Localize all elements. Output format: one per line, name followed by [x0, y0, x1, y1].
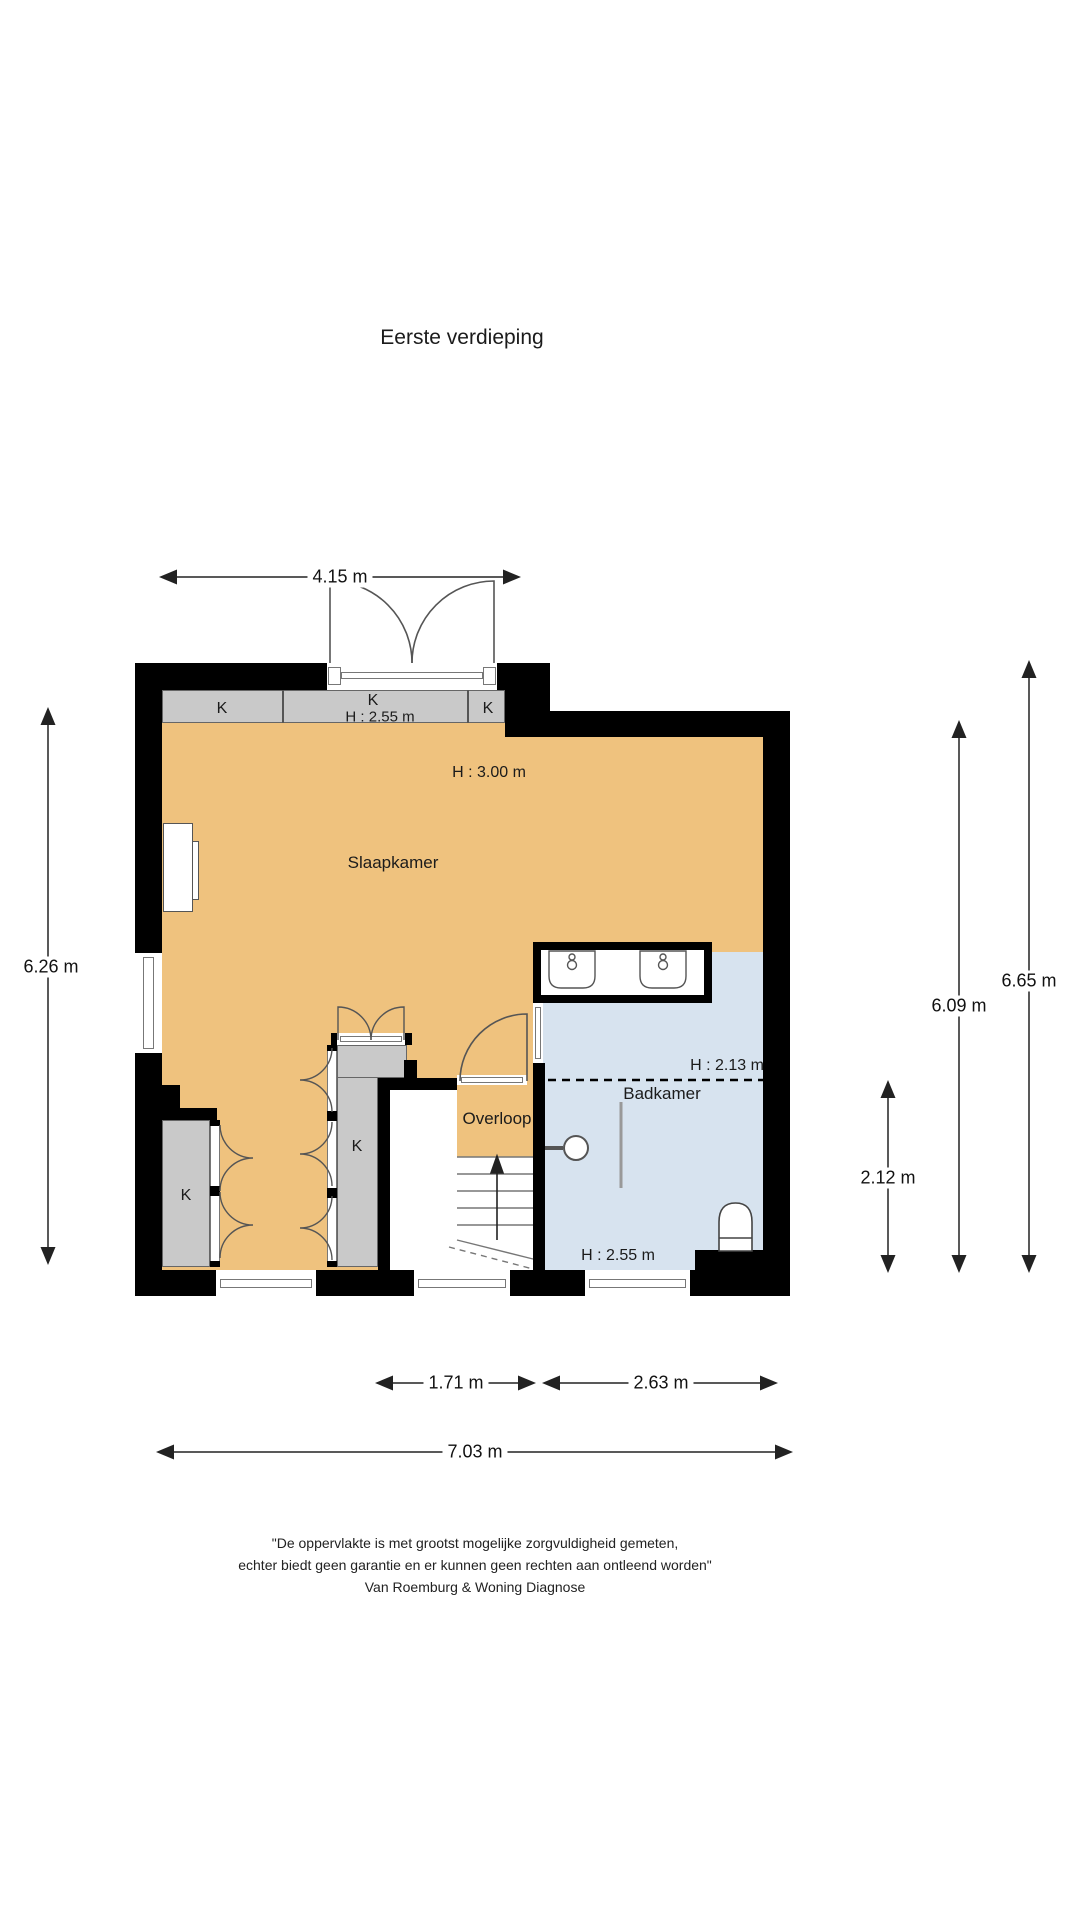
closet-mid-top-doors — [338, 1007, 404, 1040]
closet-left-bifold-doors — [220, 1125, 253, 1258]
badkamer-height-lower-label: H : 2.55 m — [581, 1247, 655, 1265]
closet-top-mid-label: K — [368, 692, 379, 710]
slaapkamer-label: Slaapkamer — [348, 853, 439, 873]
footer-disclaimer-line1: "De oppervlakte is met grootst mogelijke… — [272, 1535, 679, 1551]
overloop-door-swing — [460, 1014, 527, 1081]
closet-mid-bifold-doors — [300, 1048, 332, 1260]
dim-right-outer-height: 6.65 m — [996, 971, 1061, 992]
shower — [545, 1136, 588, 1160]
dimension-lines — [48, 577, 1029, 1452]
dim-badkamer-width: 2.63 m — [628, 1373, 693, 1394]
closet-mid-label: K — [352, 1138, 363, 1156]
dim-top-width: 4.15 m — [307, 567, 372, 588]
footer-company-line: Van Roemburg & Woning Diagnose — [365, 1579, 586, 1595]
dim-right-inner-height: 6.09 m — [926, 996, 991, 1017]
footer-disclaimer-line2: echter biedt geen garantie en er kunnen … — [238, 1557, 712, 1573]
dim-left-height: 6.26 m — [18, 957, 83, 978]
dim-badkamer-height: 2.12 m — [855, 1168, 920, 1189]
french-door-leaves — [330, 581, 494, 663]
badkamer-label: Badkamer — [623, 1084, 700, 1104]
plan-linework — [0, 0, 1080, 1920]
vanity-sinks — [549, 951, 686, 988]
overloop-label: Overloop — [463, 1109, 532, 1129]
floorplan-page: Eerste verdieping — [0, 0, 1080, 1920]
stairs-up-arrow — [491, 1156, 503, 1240]
slaapkamer-height-label: H : 3.00 m — [452, 764, 526, 782]
dim-stair-width: 1.71 m — [423, 1373, 488, 1394]
closet-top-mid-height-label: H : 2.55 m — [345, 709, 414, 726]
closet-top-right-label: K — [483, 700, 494, 718]
toilet — [719, 1203, 752, 1251]
closet-left-label: K — [181, 1187, 192, 1205]
badkamer-height-upper-label: H : 2.13 m — [690, 1057, 764, 1075]
closet-top-left-label: K — [217, 700, 228, 718]
dim-total-width: 7.03 m — [442, 1442, 507, 1463]
